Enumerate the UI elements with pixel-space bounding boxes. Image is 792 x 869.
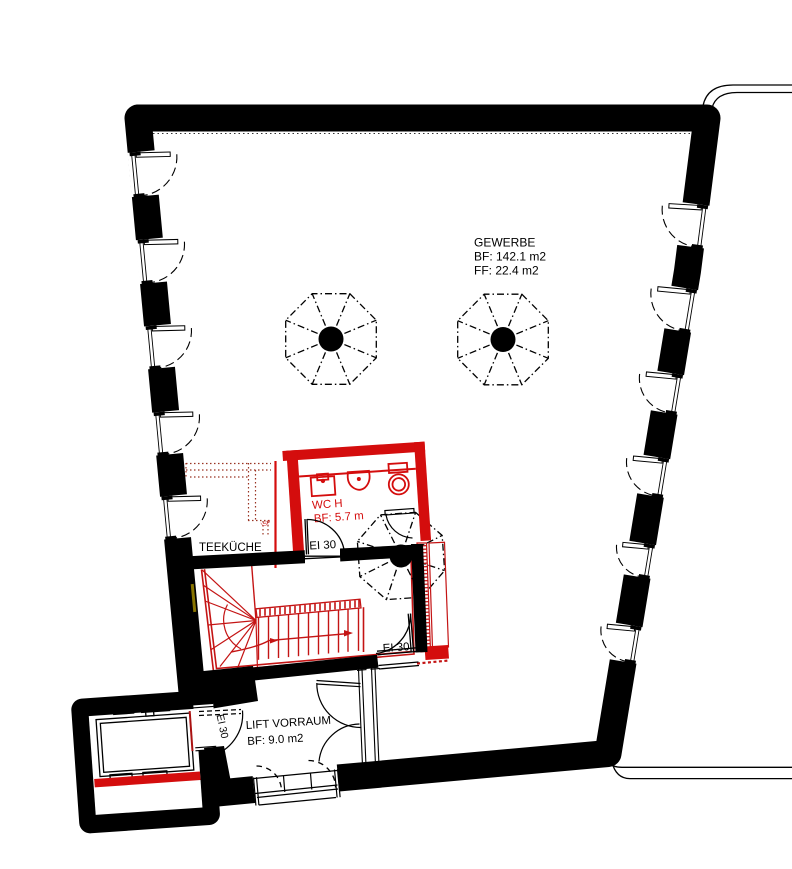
svg-text:FF: 22.4 m2: FF: 22.4 m2 bbox=[474, 264, 539, 278]
svg-text:WC H: WC H bbox=[312, 498, 343, 512]
svg-text:TEEKÜCHE: TEEKÜCHE bbox=[199, 542, 262, 554]
svg-text:BF: 142.1 m2: BF: 142.1 m2 bbox=[474, 250, 546, 264]
svg-text:GEWERBE: GEWERBE bbox=[474, 236, 535, 250]
svg-text:EI 30: EI 30 bbox=[382, 641, 410, 655]
svg-text:EI 30: EI 30 bbox=[309, 539, 336, 552]
